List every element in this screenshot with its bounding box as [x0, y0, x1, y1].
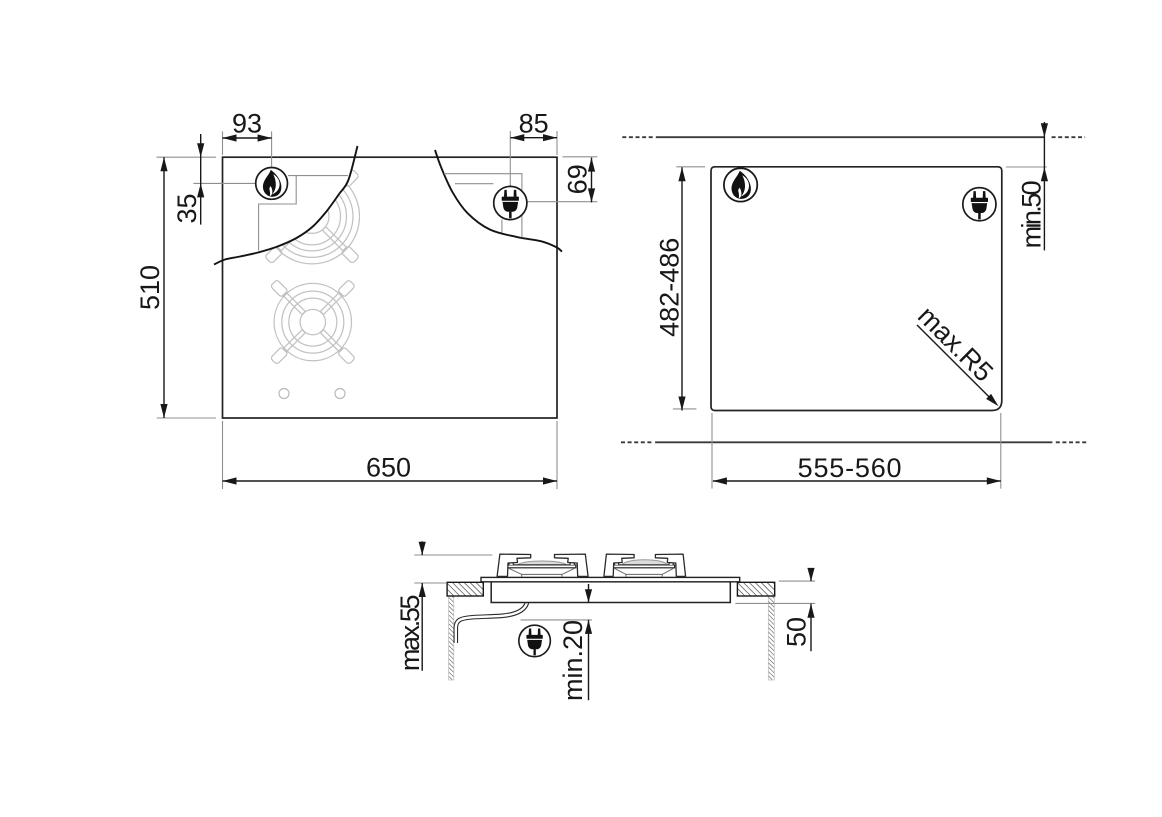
svg-text:69: 69	[563, 164, 593, 194]
svg-text:555-560: 555-560	[798, 453, 903, 483]
svg-text:max.55: max.55	[395, 596, 425, 672]
svg-text:50: 50	[782, 617, 812, 647]
svg-text:max.R5: max.R5	[912, 301, 999, 388]
svg-text:35: 35	[172, 193, 202, 223]
svg-text:510: 510	[135, 265, 165, 310]
svg-text:93: 93	[232, 109, 262, 139]
svg-text:min.50: min.50	[1017, 181, 1047, 248]
svg-text:482-486: 482-486	[655, 238, 685, 337]
svg-text:650: 650	[366, 453, 411, 483]
svg-text:min.20: min.20	[558, 620, 588, 701]
svg-text:85: 85	[519, 108, 549, 138]
